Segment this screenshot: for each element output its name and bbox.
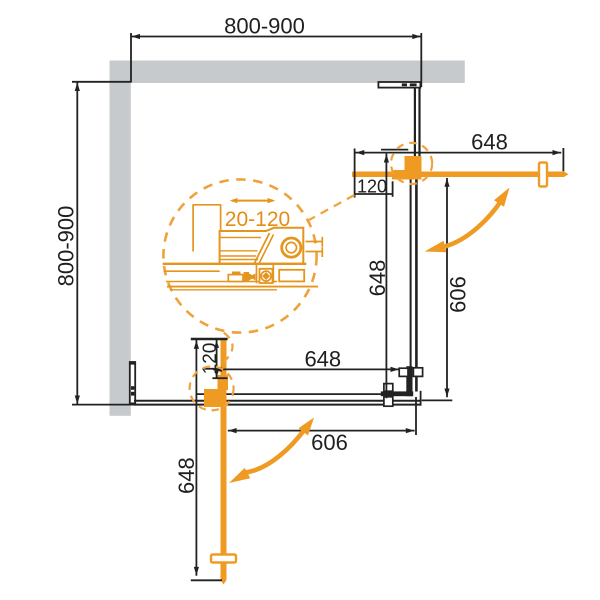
svg-text:606: 606 xyxy=(446,276,471,313)
svg-text:648: 648 xyxy=(365,260,390,297)
svg-text:606: 606 xyxy=(311,430,348,455)
svg-text:120: 120 xyxy=(357,177,387,197)
svg-text:800-900: 800-900 xyxy=(224,14,305,39)
svg-text:648: 648 xyxy=(174,457,199,494)
svg-text:648: 648 xyxy=(304,347,341,372)
svg-text:800-900: 800-900 xyxy=(54,206,79,287)
svg-text:20-120: 20-120 xyxy=(225,208,290,231)
svg-text:648: 648 xyxy=(471,130,508,155)
